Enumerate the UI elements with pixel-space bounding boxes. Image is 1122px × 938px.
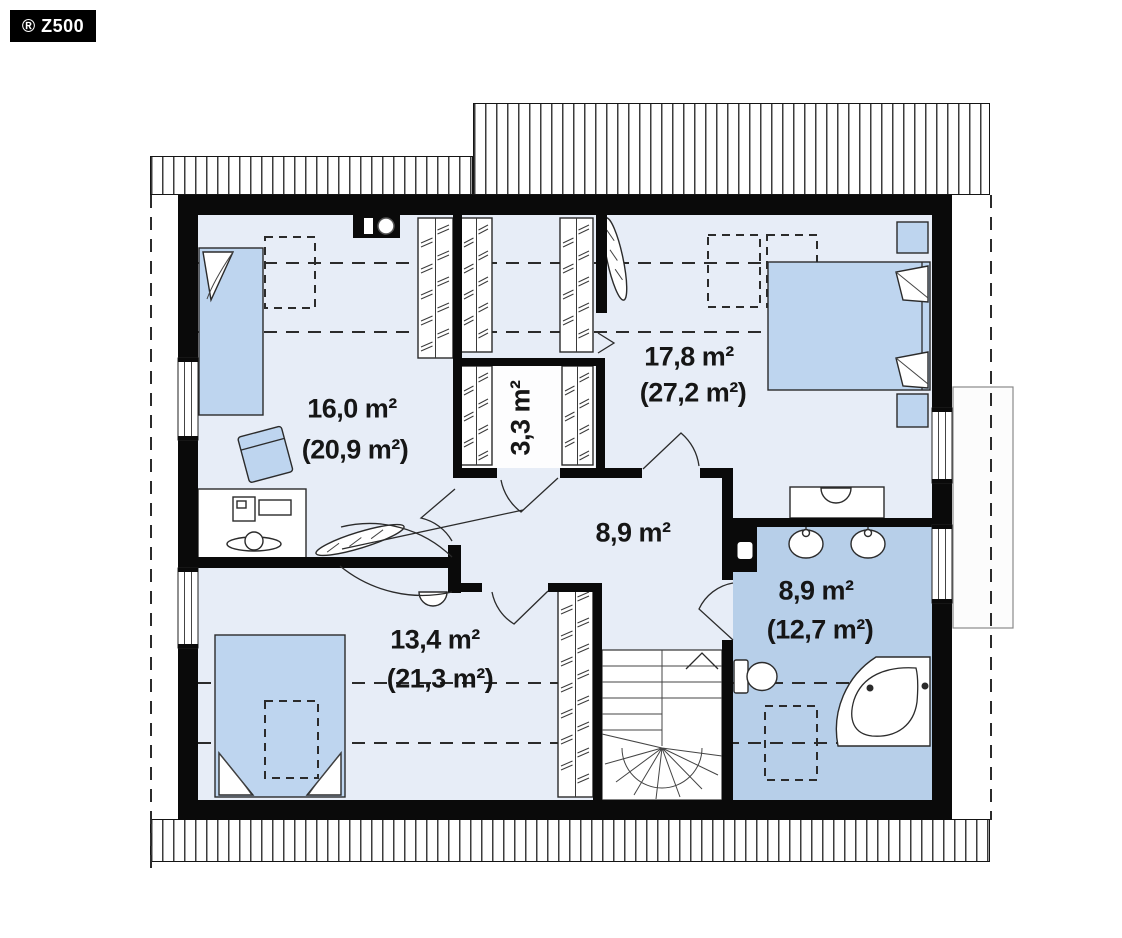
brand-badge: ® Z500	[10, 10, 96, 42]
bathroom-area-label: 8,9 m²	[778, 576, 853, 607]
hall-area-label: 8,9 m²	[595, 518, 670, 549]
nightstand	[897, 222, 928, 253]
bed-single	[199, 248, 263, 415]
terrace-outline	[953, 387, 1013, 628]
closet-area-label: 3,3 m²	[506, 380, 537, 455]
wardrobe	[461, 366, 492, 465]
window	[932, 408, 952, 483]
floor-plan-drawing	[0, 0, 1122, 938]
room-area-label: 13,4 m²	[390, 625, 480, 656]
toilet	[734, 660, 777, 693]
window	[932, 525, 952, 603]
window	[178, 358, 198, 440]
bathroom-floor-area-label: (12,7 m²)	[767, 615, 874, 646]
wardrobe	[560, 218, 593, 352]
floor-plan-page: 16,0 m² (20,9 m²) 17,8 m² (27,2 m²) 3,3 …	[0, 0, 1122, 938]
chimney-vent	[353, 195, 400, 238]
bathroom-vent	[733, 527, 757, 572]
room-floor-area-label: (21,3 m²)	[387, 664, 494, 695]
wardrobe	[562, 366, 593, 465]
nightstand	[897, 394, 928, 427]
wardrobe	[558, 585, 593, 797]
bed-double	[215, 635, 345, 797]
room-floor-area-label: (20,9 m²)	[302, 435, 409, 466]
window	[178, 568, 198, 648]
bed-double	[768, 262, 930, 390]
wardrobe	[461, 218, 492, 352]
wardrobe	[418, 218, 453, 358]
staircase	[602, 650, 722, 800]
room-area-label: 17,8 m²	[644, 342, 734, 373]
room-floor-area-label: (27,2 m²)	[640, 378, 747, 409]
room-area-label: 16,0 m²	[307, 394, 397, 425]
